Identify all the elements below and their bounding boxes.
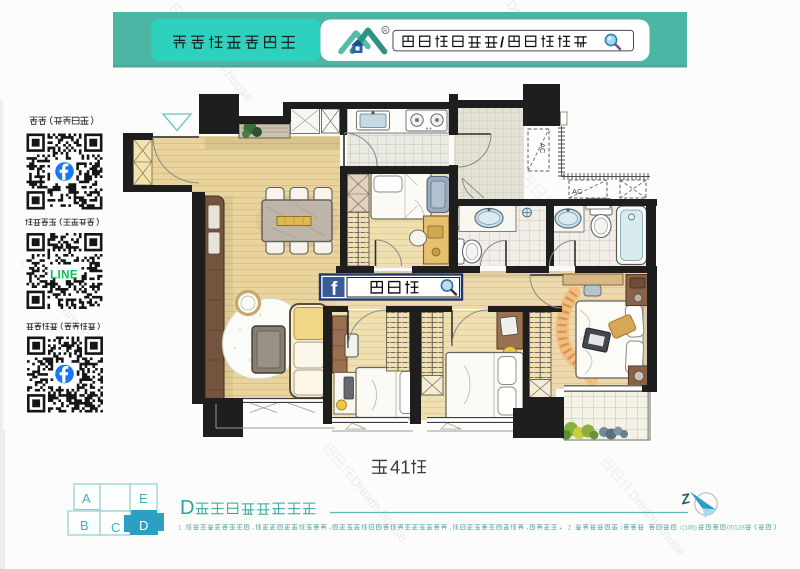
svg-text:AC: AC [572,187,583,196]
svg-text:C: C [111,520,120,535]
svg-text:D: D [139,518,148,533]
svg-text:00128: 00128 [727,525,745,532]
svg-text:f: f [331,279,338,300]
svg-text:41: 41 [390,457,411,478]
svg-text:R: R [383,29,387,35]
svg-text:D: D [180,497,194,519]
svg-text:E: E [139,491,148,506]
svg-text:(106): (106) [682,525,697,532]
svg-text:B: B [80,518,89,533]
svg-text:LINE: LINE [50,270,78,282]
svg-text:A: A [82,491,91,506]
svg-text:AC: AC [538,143,547,154]
